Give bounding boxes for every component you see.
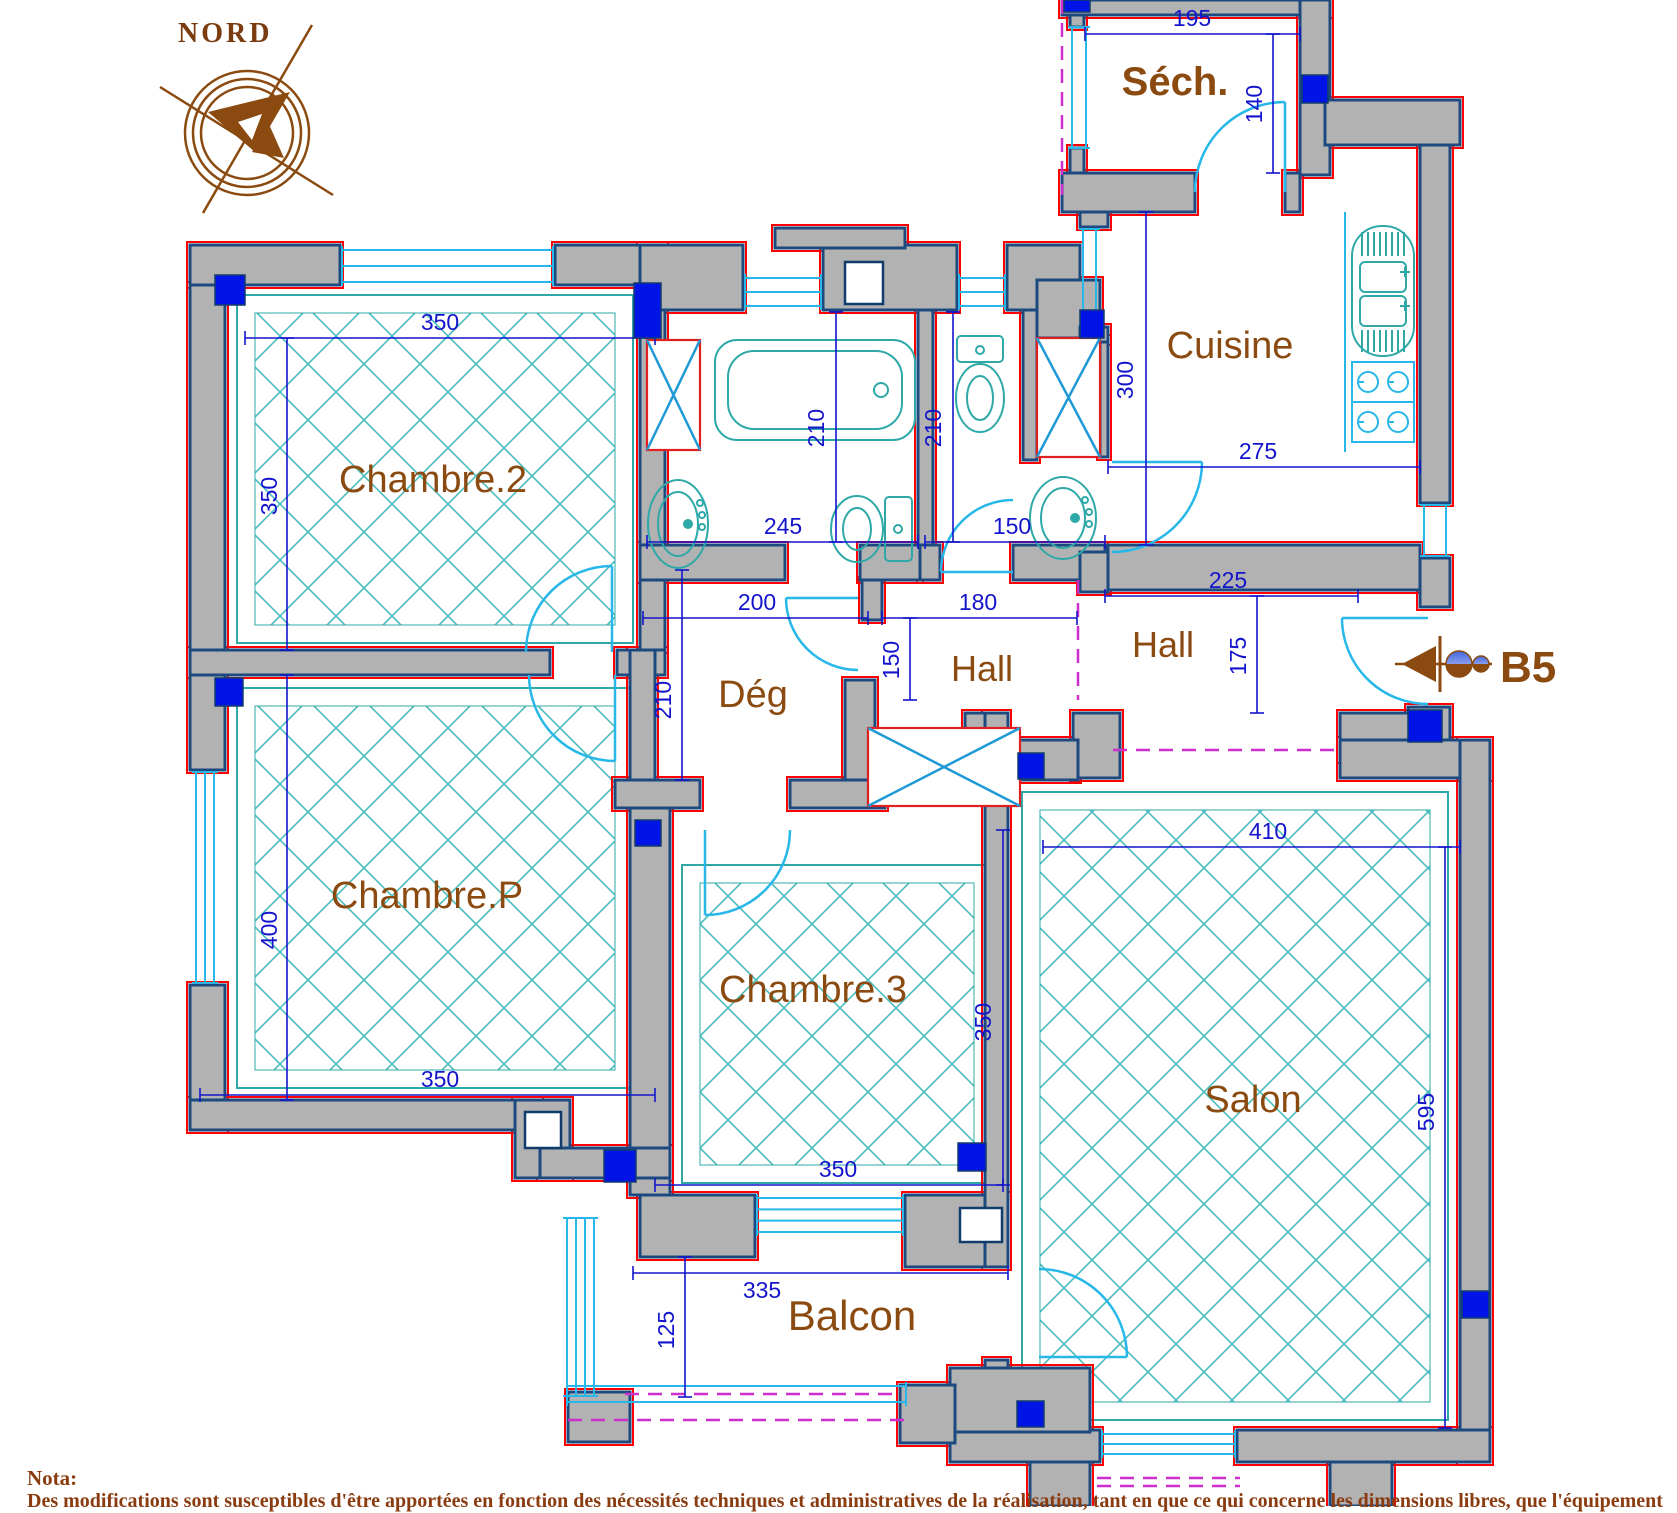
wall [920, 545, 940, 580]
dimension: 300 [1112, 212, 1153, 545]
window [745, 274, 821, 310]
wall [900, 1385, 955, 1443]
wall [775, 228, 905, 248]
toilet [956, 336, 1004, 432]
kitchen-sink [1352, 226, 1414, 356]
wall [1108, 545, 1420, 590]
column [634, 283, 661, 338]
dimension-value: 180 [959, 589, 997, 615]
dimension-value: 350 [421, 1066, 459, 1092]
duct [868, 728, 1020, 806]
entrance-marker: B5 [1395, 636, 1556, 692]
wall [630, 805, 670, 1195]
wall [1062, 173, 1195, 212]
dimension-value: 210 [650, 681, 676, 719]
dimension: 180 [882, 589, 1077, 625]
dimension-value: 300 [1112, 361, 1138, 399]
window [1068, 27, 1090, 148]
compass-label: NORD [178, 18, 272, 49]
wall [1420, 558, 1450, 607]
window [959, 274, 1005, 310]
dimension: 275 [1108, 438, 1420, 474]
wall [1460, 740, 1490, 1462]
room-label-chambre-3: Chambre.3 [719, 969, 907, 1011]
nota-title: Nota: [27, 1466, 77, 1491]
dimension-value: 200 [738, 589, 776, 615]
window [1420, 505, 1450, 556]
window [1102, 1430, 1235, 1458]
entrance-label: B5 [1500, 643, 1556, 692]
column [215, 678, 243, 706]
room-label-d-g: Dég [718, 674, 788, 716]
wall [640, 545, 785, 580]
wall [862, 580, 882, 620]
shaft [845, 262, 883, 304]
wall [1237, 1430, 1490, 1462]
window [757, 1194, 903, 1236]
dimension: 125 [653, 1257, 692, 1397]
dimension-value: 350 [970, 1003, 996, 1041]
wall [1070, 15, 1084, 27]
dimension-value: 350 [819, 1156, 857, 1182]
window [563, 1218, 598, 1396]
wall [190, 650, 550, 675]
column [1018, 753, 1044, 779]
column [958, 1143, 986, 1171]
wall [950, 1430, 1100, 1462]
dimension-value: 350 [256, 477, 282, 515]
window [342, 246, 553, 286]
dimension-value: 150 [993, 513, 1031, 539]
north-arrow-icon [160, 25, 333, 213]
dimension-value: 210 [920, 409, 946, 447]
wall [615, 780, 700, 808]
wall [823, 245, 957, 310]
wall [1100, 338, 1108, 457]
dimension-value: 125 [653, 1311, 679, 1349]
column [1080, 310, 1104, 338]
wall [1073, 713, 1120, 778]
nota-body: Des modifications sont susceptibles d'êt… [27, 1490, 1663, 1513]
wall [190, 245, 340, 285]
column [1064, 0, 1090, 12]
compass: NORD [160, 18, 333, 213]
floor-plan-page: { "title_block": { "compass_label": "NOR… [0, 0, 1677, 1506]
column [215, 275, 245, 305]
dimension-value: 140 [1241, 85, 1267, 123]
duct [1037, 338, 1100, 457]
wall [1285, 173, 1300, 212]
entrance-arrow-icon [1395, 636, 1492, 692]
column [604, 1150, 636, 1182]
column [1462, 1291, 1489, 1318]
room-label-balcon: Balcon [788, 1292, 916, 1339]
wall [1325, 100, 1460, 145]
wall [568, 1392, 630, 1442]
room-label-chambre-p: Chambre.P [331, 875, 523, 917]
dimension-value: 195 [1173, 5, 1211, 31]
door-bain [786, 598, 858, 670]
dimension: 150 [878, 618, 917, 700]
room-label-s-ch: Séch. [1122, 60, 1229, 104]
column [1408, 710, 1442, 742]
dimension-value: 225 [1209, 567, 1247, 593]
door-sechoir [1195, 102, 1285, 192]
dimension-value: 245 [764, 513, 802, 539]
hatch-floor-chambre3 [700, 883, 974, 1165]
dimension: 175 [1225, 596, 1264, 713]
room-label-cuisine: Cuisine [1167, 325, 1294, 367]
dimension-value: 210 [803, 409, 829, 447]
duct [647, 340, 700, 450]
wall [1080, 552, 1108, 592]
dimension-value: 595 [1413, 1093, 1439, 1131]
wall [640, 1195, 755, 1257]
wall [190, 1100, 540, 1130]
column [635, 820, 661, 846]
column [1302, 75, 1328, 103]
shaft [960, 1208, 1002, 1242]
wall [1023, 310, 1037, 460]
door-cuisine [1112, 462, 1202, 552]
dimension-value: 400 [256, 911, 282, 949]
dimension-value: 410 [1249, 818, 1287, 844]
room-label-chambre-2: Chambre.2 [339, 459, 527, 501]
floor-plan-canvas: 1951403002752251751502452102103503504003… [0, 0, 1677, 1506]
dimension-value: 350 [421, 309, 459, 335]
room-label-hall: Hall [1132, 624, 1194, 665]
dimension-value: 175 [1225, 637, 1251, 675]
column [1017, 1401, 1044, 1427]
shaft [525, 1112, 561, 1148]
dimension: 200 [643, 589, 868, 625]
wall [1420, 145, 1450, 503]
room-label-hall: Hall [951, 648, 1013, 689]
wall [1070, 148, 1084, 175]
dimension-value: 150 [878, 641, 904, 679]
stove [1352, 362, 1414, 442]
dimension-value: 335 [743, 1277, 781, 1303]
window [192, 772, 218, 983]
dimension-value: 275 [1239, 438, 1277, 464]
room-label-salon: Salon [1204, 1079, 1301, 1121]
